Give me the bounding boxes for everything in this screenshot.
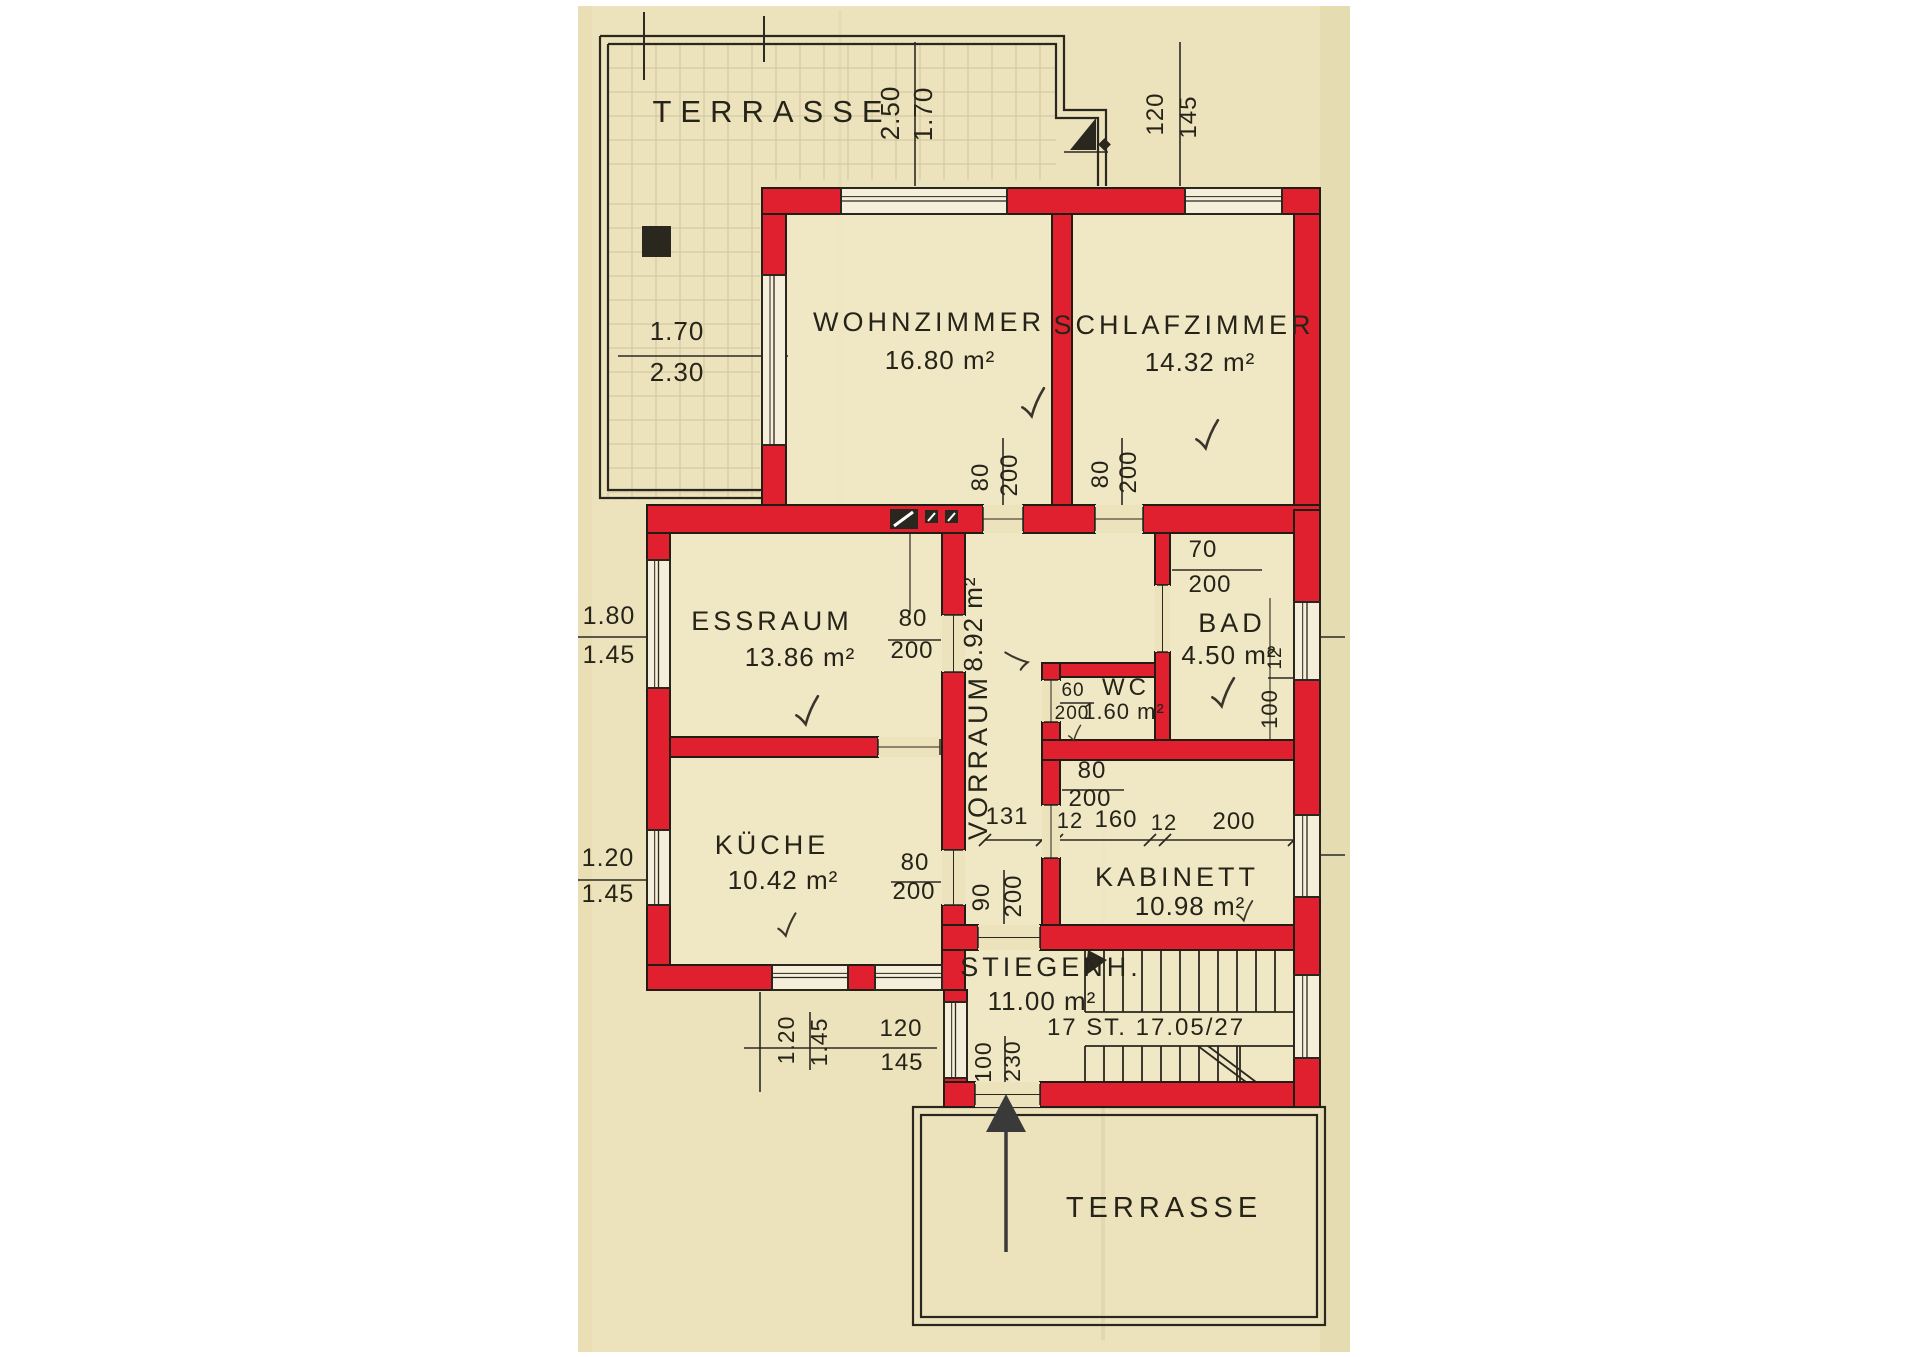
dimension-label: 80 — [1087, 460, 1114, 489]
dimension-label: 1.70 — [908, 87, 938, 142]
room-label-essraum: ESSRAUM — [691, 606, 853, 636]
room-area-essraum: 13.86 m² — [745, 642, 856, 672]
room-area-schlafzimmer: 14.32 m² — [1145, 347, 1256, 377]
room-area-kabinett: 10.98 m² — [1135, 891, 1246, 921]
dimension-label: 2.50 — [875, 86, 905, 141]
dimension-label: 200 — [996, 453, 1023, 496]
dimension-label: 80 — [899, 605, 928, 632]
dimension-label: 200 — [1055, 703, 1090, 724]
room-label-bad: BAD — [1198, 608, 1266, 638]
dimension-label: 160 — [1094, 806, 1137, 833]
dimension-label: 200 — [890, 637, 933, 664]
dimension-label: 80 — [967, 463, 994, 492]
dimension-label: 200 — [892, 878, 935, 905]
room-label-wc: WC — [1102, 674, 1150, 701]
dimension-label: 120 — [879, 1015, 922, 1042]
room-area-bad: 4.50 m² — [1181, 640, 1276, 670]
floor-plan-drawing: TERRASSEWOHNZIMMER16.80 m²SCHLAFZIMMER14… — [0, 0, 1920, 1357]
dimension-label: 1.80 — [583, 602, 636, 630]
dimension-label: 2.30 — [650, 357, 705, 387]
dimension-label: 131 — [985, 803, 1028, 830]
dimension-label: 200 — [1000, 874, 1027, 917]
stair-count-note: 17 ST. 17.05/27 — [1047, 1014, 1245, 1041]
room-label-terrasse-bottom: TERRASSE — [1066, 1192, 1262, 1224]
dimension-label: 200 — [1188, 571, 1231, 598]
dimension-label: 12 — [1057, 808, 1083, 833]
dimension-label: 100 — [1257, 689, 1282, 729]
dimension-label: 1.70 — [650, 316, 705, 346]
dimension-label: 200 — [1115, 450, 1142, 493]
dimension-label: 1.20 — [773, 1016, 799, 1065]
dimension-label: 60 — [1061, 680, 1084, 701]
dimension-label: 100 — [970, 1041, 996, 1082]
dimension-label: 1.20 — [582, 844, 635, 872]
dimension-label: 1.45 — [806, 1018, 832, 1067]
room-area-vorraum: 8.92 m² — [958, 576, 988, 671]
dimension-label: 120 — [1142, 92, 1169, 135]
scanned-floor-plan-page: TERRASSEWOHNZIMMER16.80 m²SCHLAFZIMMER14… — [0, 0, 1920, 1357]
dimension-label: 12 — [1151, 810, 1177, 835]
dimension-label: 145 — [880, 1049, 923, 1076]
dimension-label: 80 — [901, 849, 930, 876]
dimension-label: 230 — [999, 1040, 1025, 1081]
paper-edge-shadow — [578, 6, 592, 1352]
room-label-kabinett: KABINETT — [1095, 862, 1259, 892]
room-label-terrasse-top: TERRASSE — [652, 94, 891, 129]
room-label-stiegenhaus: STIEGENH. — [960, 952, 1142, 982]
dimension-label: 145 — [1175, 95, 1202, 138]
room-label-schlafzimmer: SCHLAFZIMMER — [1053, 310, 1314, 340]
dimension-label: 70 — [1189, 536, 1218, 563]
room-area-stiegenhaus: 11.00 m² — [988, 986, 1097, 1016]
dimension-label: 1.45 — [582, 880, 635, 908]
room-area-wc: 1.60 m² — [1083, 699, 1165, 724]
room-label-wohnzimmer: WOHNZIMMER — [813, 307, 1045, 337]
dimension-label: 90 — [968, 883, 995, 912]
dimension-label: 12 — [1265, 646, 1286, 669]
room-label-kueche: KÜCHE — [715, 830, 830, 860]
dimension-label: 80 — [1078, 757, 1107, 784]
room-area-kueche: 10.42 m² — [728, 865, 839, 895]
room-area-wohnzimmer: 16.80 m² — [885, 345, 996, 375]
dimension-label: 1.45 — [583, 641, 636, 669]
terrace-post — [642, 226, 671, 257]
dimension-label: 200 — [1212, 808, 1255, 835]
